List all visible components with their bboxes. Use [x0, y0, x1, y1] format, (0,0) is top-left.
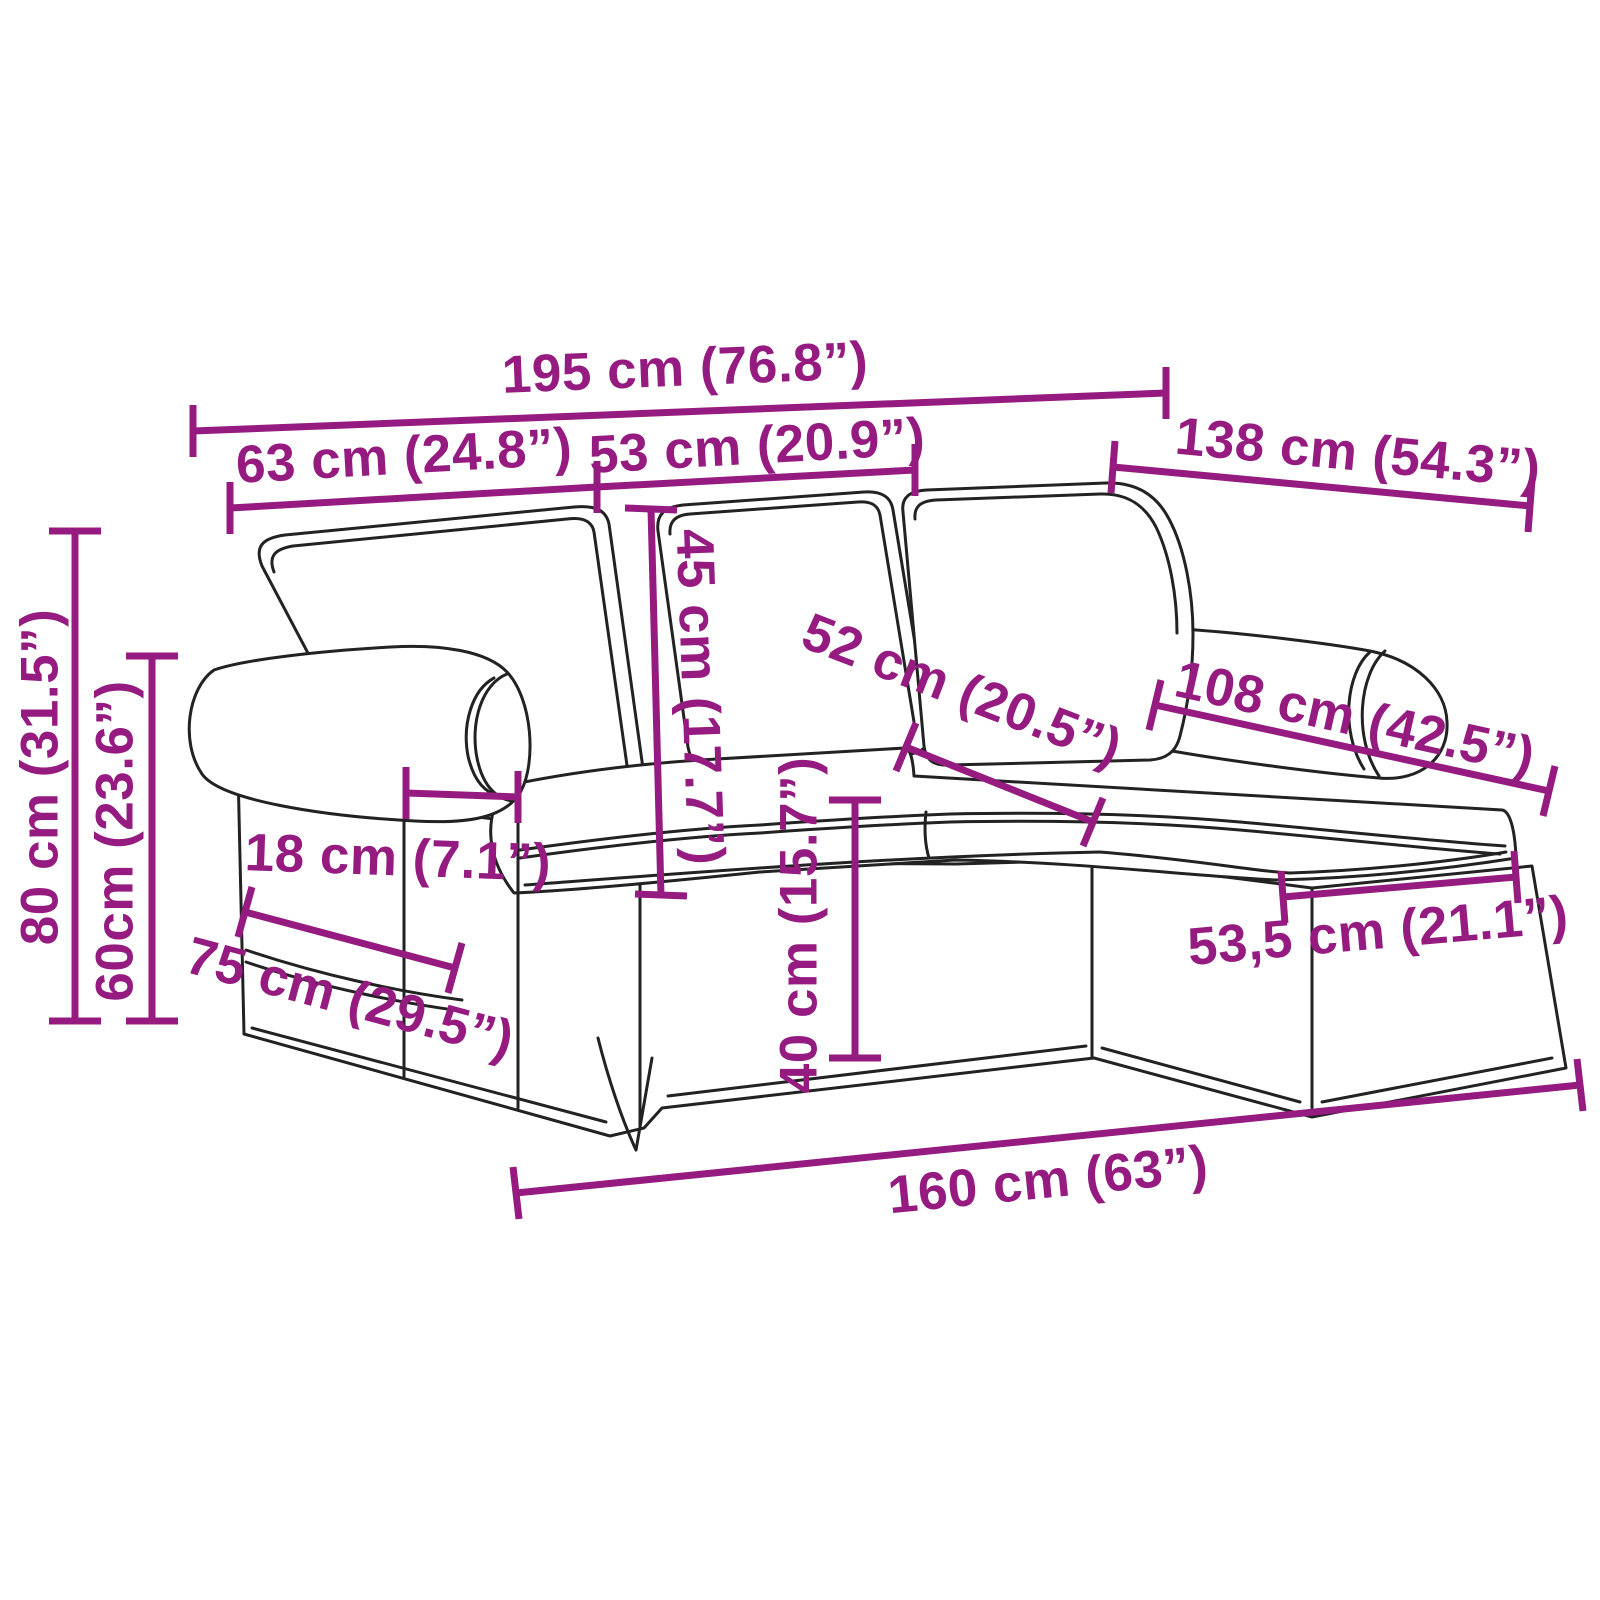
dim-label-arm-height: 60cm (23.6”)	[85, 680, 146, 1001]
dim-label-seat-height: 40 cm (15.7”)	[769, 757, 830, 1093]
dim-label-armrest-width: 18 cm (7.1”)	[244, 822, 552, 894]
sofa-drawing	[189, 483, 1566, 1150]
sofa-dimension-diagram: 195 cm (76.8”) 63 cm (24.8”) 53 cm (20.9…	[0, 0, 1600, 1600]
dim-label-overall-height: 80 cm (31.5”)	[10, 609, 71, 945]
dim-label-back-cushion-height: 45 cm (17.7”)	[664, 528, 737, 866]
